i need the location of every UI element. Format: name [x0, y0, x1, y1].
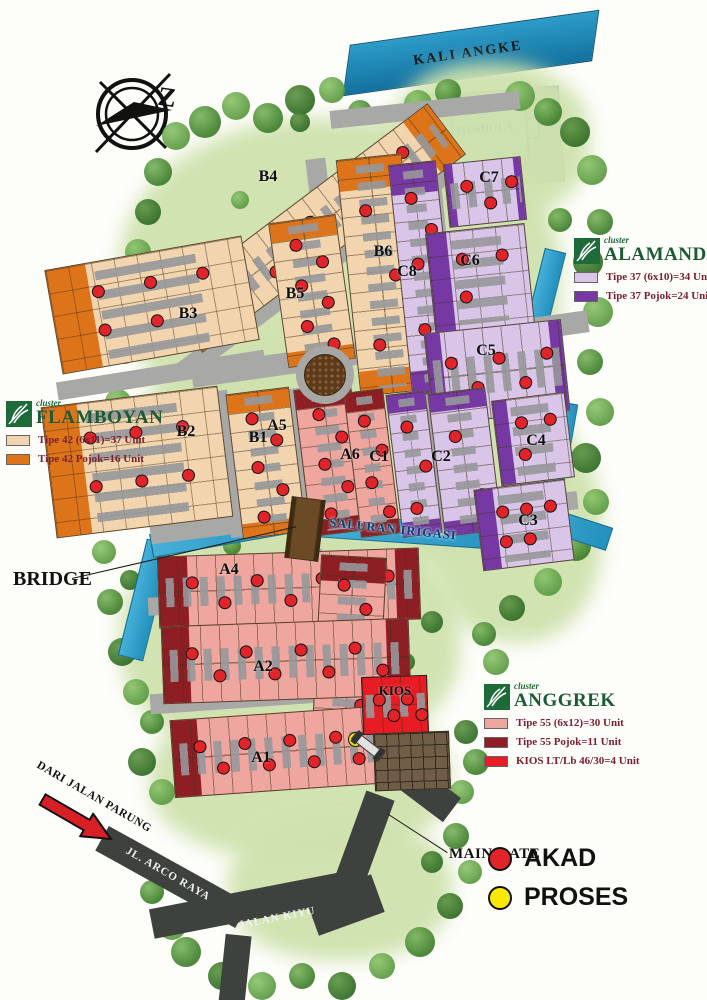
block-label-A4: A4	[219, 561, 239, 579]
compass-icon	[84, 60, 194, 170]
tree	[189, 106, 221, 138]
driveway	[167, 642, 404, 682]
tree	[586, 398, 614, 426]
cluster-logo-icon	[6, 401, 32, 427]
legend-item: Tipe 55 (6x12)=30 Unit	[484, 717, 654, 729]
tree	[123, 679, 149, 705]
legend-item-text: Tipe 37 (6x10)=34 Unit	[606, 271, 707, 283]
tree	[571, 443, 601, 473]
akad-dot	[382, 504, 396, 518]
tree	[97, 589, 123, 615]
legend-item-text: Tipe 42 Pojok=16 Unit	[38, 453, 144, 465]
tree	[128, 748, 156, 776]
akad-dot-icon	[488, 847, 512, 871]
akad-dot	[358, 203, 372, 217]
tree	[587, 209, 613, 235]
asphalt-road	[218, 934, 251, 1000]
tree	[171, 937, 201, 967]
tree	[421, 611, 443, 633]
legend-item: Tipe 37 (6x10)=34 Unit	[574, 271, 707, 283]
block-label-A6: A6	[340, 446, 360, 464]
tree	[248, 972, 276, 1000]
akad-dot	[182, 468, 196, 482]
legend-cluster-name: ALAMANDA	[604, 245, 707, 264]
block-label-C8: C8	[397, 263, 417, 281]
block-label-C6: C6	[460, 252, 480, 270]
tree	[319, 77, 345, 103]
akad-dot	[543, 498, 557, 512]
cluster-logo-icon	[484, 684, 510, 710]
akad-dot	[284, 593, 297, 606]
akad-dot	[322, 665, 335, 678]
legend-item-text: Tipe 42 (6x11)=37 Unit	[38, 434, 145, 446]
tree	[285, 85, 315, 115]
tree	[92, 540, 116, 564]
siteplan-map: KALI ANGKE Z MUSHOLA B4B3B2B1B5B6C8C7C6C…	[0, 0, 707, 1000]
tree	[437, 893, 463, 919]
block-label-A5: A5	[267, 417, 287, 435]
tree	[534, 98, 562, 126]
proses-dot-icon	[488, 886, 512, 910]
tree	[534, 568, 562, 596]
block-label-A2: A2	[253, 658, 273, 676]
block-label-B6: B6	[374, 243, 393, 261]
legend-item-text: Tipe 55 Pojok=11 Unit	[516, 736, 621, 748]
bridge-label: BRIDGE	[13, 568, 92, 591]
tree	[560, 117, 590, 147]
block-C7	[443, 156, 527, 228]
legend-swatch	[6, 454, 30, 465]
tree	[577, 349, 603, 375]
legend-item-text: Tipe 37 Pojok=24 Unit	[606, 290, 707, 302]
tree	[231, 191, 249, 209]
legend-swatch	[6, 435, 30, 446]
proses-label: PROSES	[524, 883, 628, 912]
block-label-C3: C3	[518, 512, 538, 530]
tree	[583, 489, 609, 515]
block-label-C4: C4	[526, 432, 546, 450]
tree	[222, 92, 250, 120]
tree	[499, 595, 525, 621]
tree	[483, 649, 509, 675]
tree	[253, 103, 283, 133]
status-akad-row: AKAD	[488, 844, 628, 873]
roundabout-island	[304, 354, 346, 396]
block-label-B2: B2	[177, 423, 196, 441]
legend-alamanda: cluster ALAMANDA Tipe 37 (6x10)=34 UnitT…	[574, 236, 707, 302]
tree	[421, 851, 443, 873]
akad-dot	[185, 576, 198, 589]
block-label-B5: B5	[286, 285, 305, 303]
direction-arrow-icon	[35, 787, 122, 853]
legend-swatch	[484, 718, 508, 729]
block-label-KIOS: KIOS	[379, 683, 412, 699]
tree	[144, 158, 172, 186]
status-proses-row: PROSES	[488, 883, 628, 912]
block-label-C5: C5	[476, 342, 496, 360]
driveway	[450, 233, 510, 326]
cluster-logo-icon	[574, 238, 600, 264]
block-label-C1: C1	[369, 448, 389, 466]
tree	[162, 122, 190, 150]
akad-label: AKAD	[524, 844, 596, 873]
akad-dot	[415, 708, 428, 721]
legend-item: Tipe 42 Pojok=16 Unit	[6, 453, 158, 465]
legend-swatch	[484, 737, 508, 748]
legend-item: Tipe 42 (6x11)=37 Unit	[6, 434, 158, 446]
legend-anggrek: cluster ANGGREK Tipe 55 (6x12)=30 UnitTi…	[484, 682, 654, 767]
block-label-B4: B4	[259, 168, 278, 186]
akad-dot	[307, 755, 321, 769]
pojok-lot	[45, 264, 102, 373]
legend-item-text: Tipe 55 (6x12)=30 Unit	[516, 717, 624, 729]
akad-dot	[353, 752, 367, 766]
tree	[458, 860, 482, 884]
akad-dot	[251, 573, 264, 586]
legend-cluster-name: ANGGREK	[514, 691, 616, 710]
legend-item: KIOS LT/Lb 46/30=4 Unit	[484, 755, 654, 767]
akad-dot	[217, 761, 231, 775]
legend-swatch	[484, 756, 508, 767]
tree	[135, 199, 161, 225]
paved-area	[373, 731, 451, 792]
legend-cluster-name: FLAMBOYAN	[36, 408, 163, 427]
tree	[328, 972, 356, 1000]
legend-swatch	[574, 291, 598, 302]
tree	[454, 720, 478, 744]
tree	[149, 779, 175, 805]
block-label-C2: C2	[431, 448, 451, 466]
tree	[290, 112, 310, 132]
legend-item-text: KIOS LT/Lb 46/30=4 Unit	[516, 755, 640, 767]
tree	[472, 622, 496, 646]
block-label-C7: C7	[479, 169, 499, 187]
tree	[405, 927, 435, 957]
block-label-B1: B1	[249, 429, 268, 447]
legend-swatch	[574, 272, 598, 283]
tree	[548, 208, 572, 232]
tree	[577, 155, 607, 185]
block-C6	[425, 223, 535, 335]
legend-item: Tipe 37 Pojok=24 Unit	[574, 290, 707, 302]
tree	[289, 963, 315, 989]
block-label-B3: B3	[179, 305, 198, 323]
status-legend: AKAD PROSES	[488, 844, 628, 922]
akad-dot	[387, 709, 400, 722]
legend-flamboyan: cluster FLAMBOYAN Tipe 42 (6x11)=37 Unit…	[6, 399, 158, 465]
legend-item: Tipe 55 Pojok=11 Unit	[484, 736, 654, 748]
block-label-A1: A1	[251, 749, 271, 767]
akad-dot	[337, 578, 351, 592]
akad-dot	[270, 433, 284, 447]
tree	[369, 953, 395, 979]
akad-dot	[214, 669, 227, 682]
akad-dot	[276, 482, 290, 496]
